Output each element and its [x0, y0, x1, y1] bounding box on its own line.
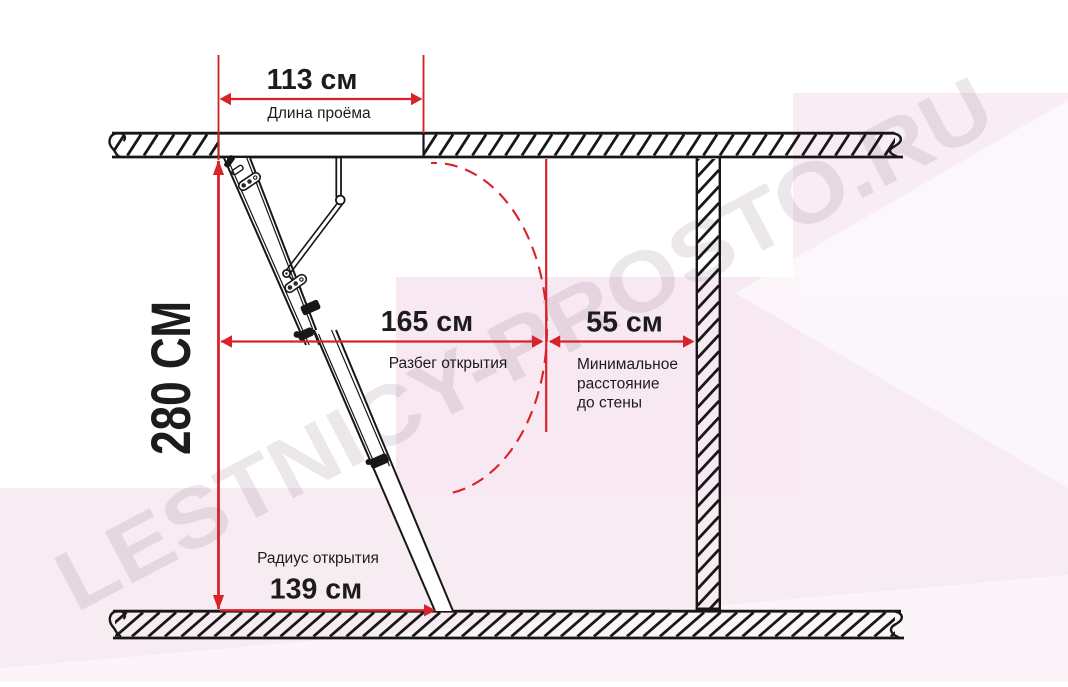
svg-text:139 см: 139 см — [270, 574, 362, 606]
svg-text:165 см: 165 см — [381, 306, 473, 338]
svg-text:расстояние: расстояние — [577, 375, 660, 392]
svg-text:до стены: до стены — [577, 395, 642, 412]
svg-text:Длина проёма: Длина проёма — [267, 105, 371, 122]
svg-text:Радиус открытия: Радиус открытия — [257, 550, 379, 567]
svg-text:280 СМ: 280 СМ — [139, 301, 202, 455]
svg-text:55 см: 55 см — [586, 307, 663, 339]
svg-text:Разбег открытия: Разбег открытия — [389, 355, 508, 372]
svg-text:113 см: 113 см — [267, 64, 358, 96]
svg-text:Минимальное: Минимальное — [577, 356, 678, 373]
